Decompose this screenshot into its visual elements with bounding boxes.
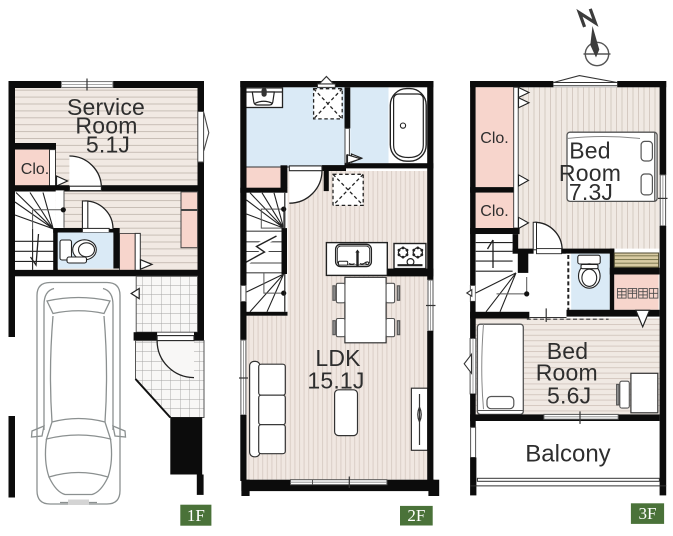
svg-text:Clo.: Clo. [480, 203, 508, 220]
svg-text:Balcony: Balcony [525, 441, 610, 468]
svg-text:1F: 1F [187, 506, 205, 525]
svg-text:5.1J: 5.1J [86, 132, 130, 158]
svg-text:5.6J: 5.6J [547, 383, 591, 409]
svg-text:Clo.: Clo. [21, 161, 49, 178]
svg-text:7.3J: 7.3J [569, 179, 613, 205]
svg-text:Clo.: Clo. [480, 130, 508, 147]
svg-text:3F: 3F [639, 504, 657, 523]
svg-text:2F: 2F [407, 506, 425, 525]
svg-text:15.1J: 15.1J [307, 368, 364, 394]
